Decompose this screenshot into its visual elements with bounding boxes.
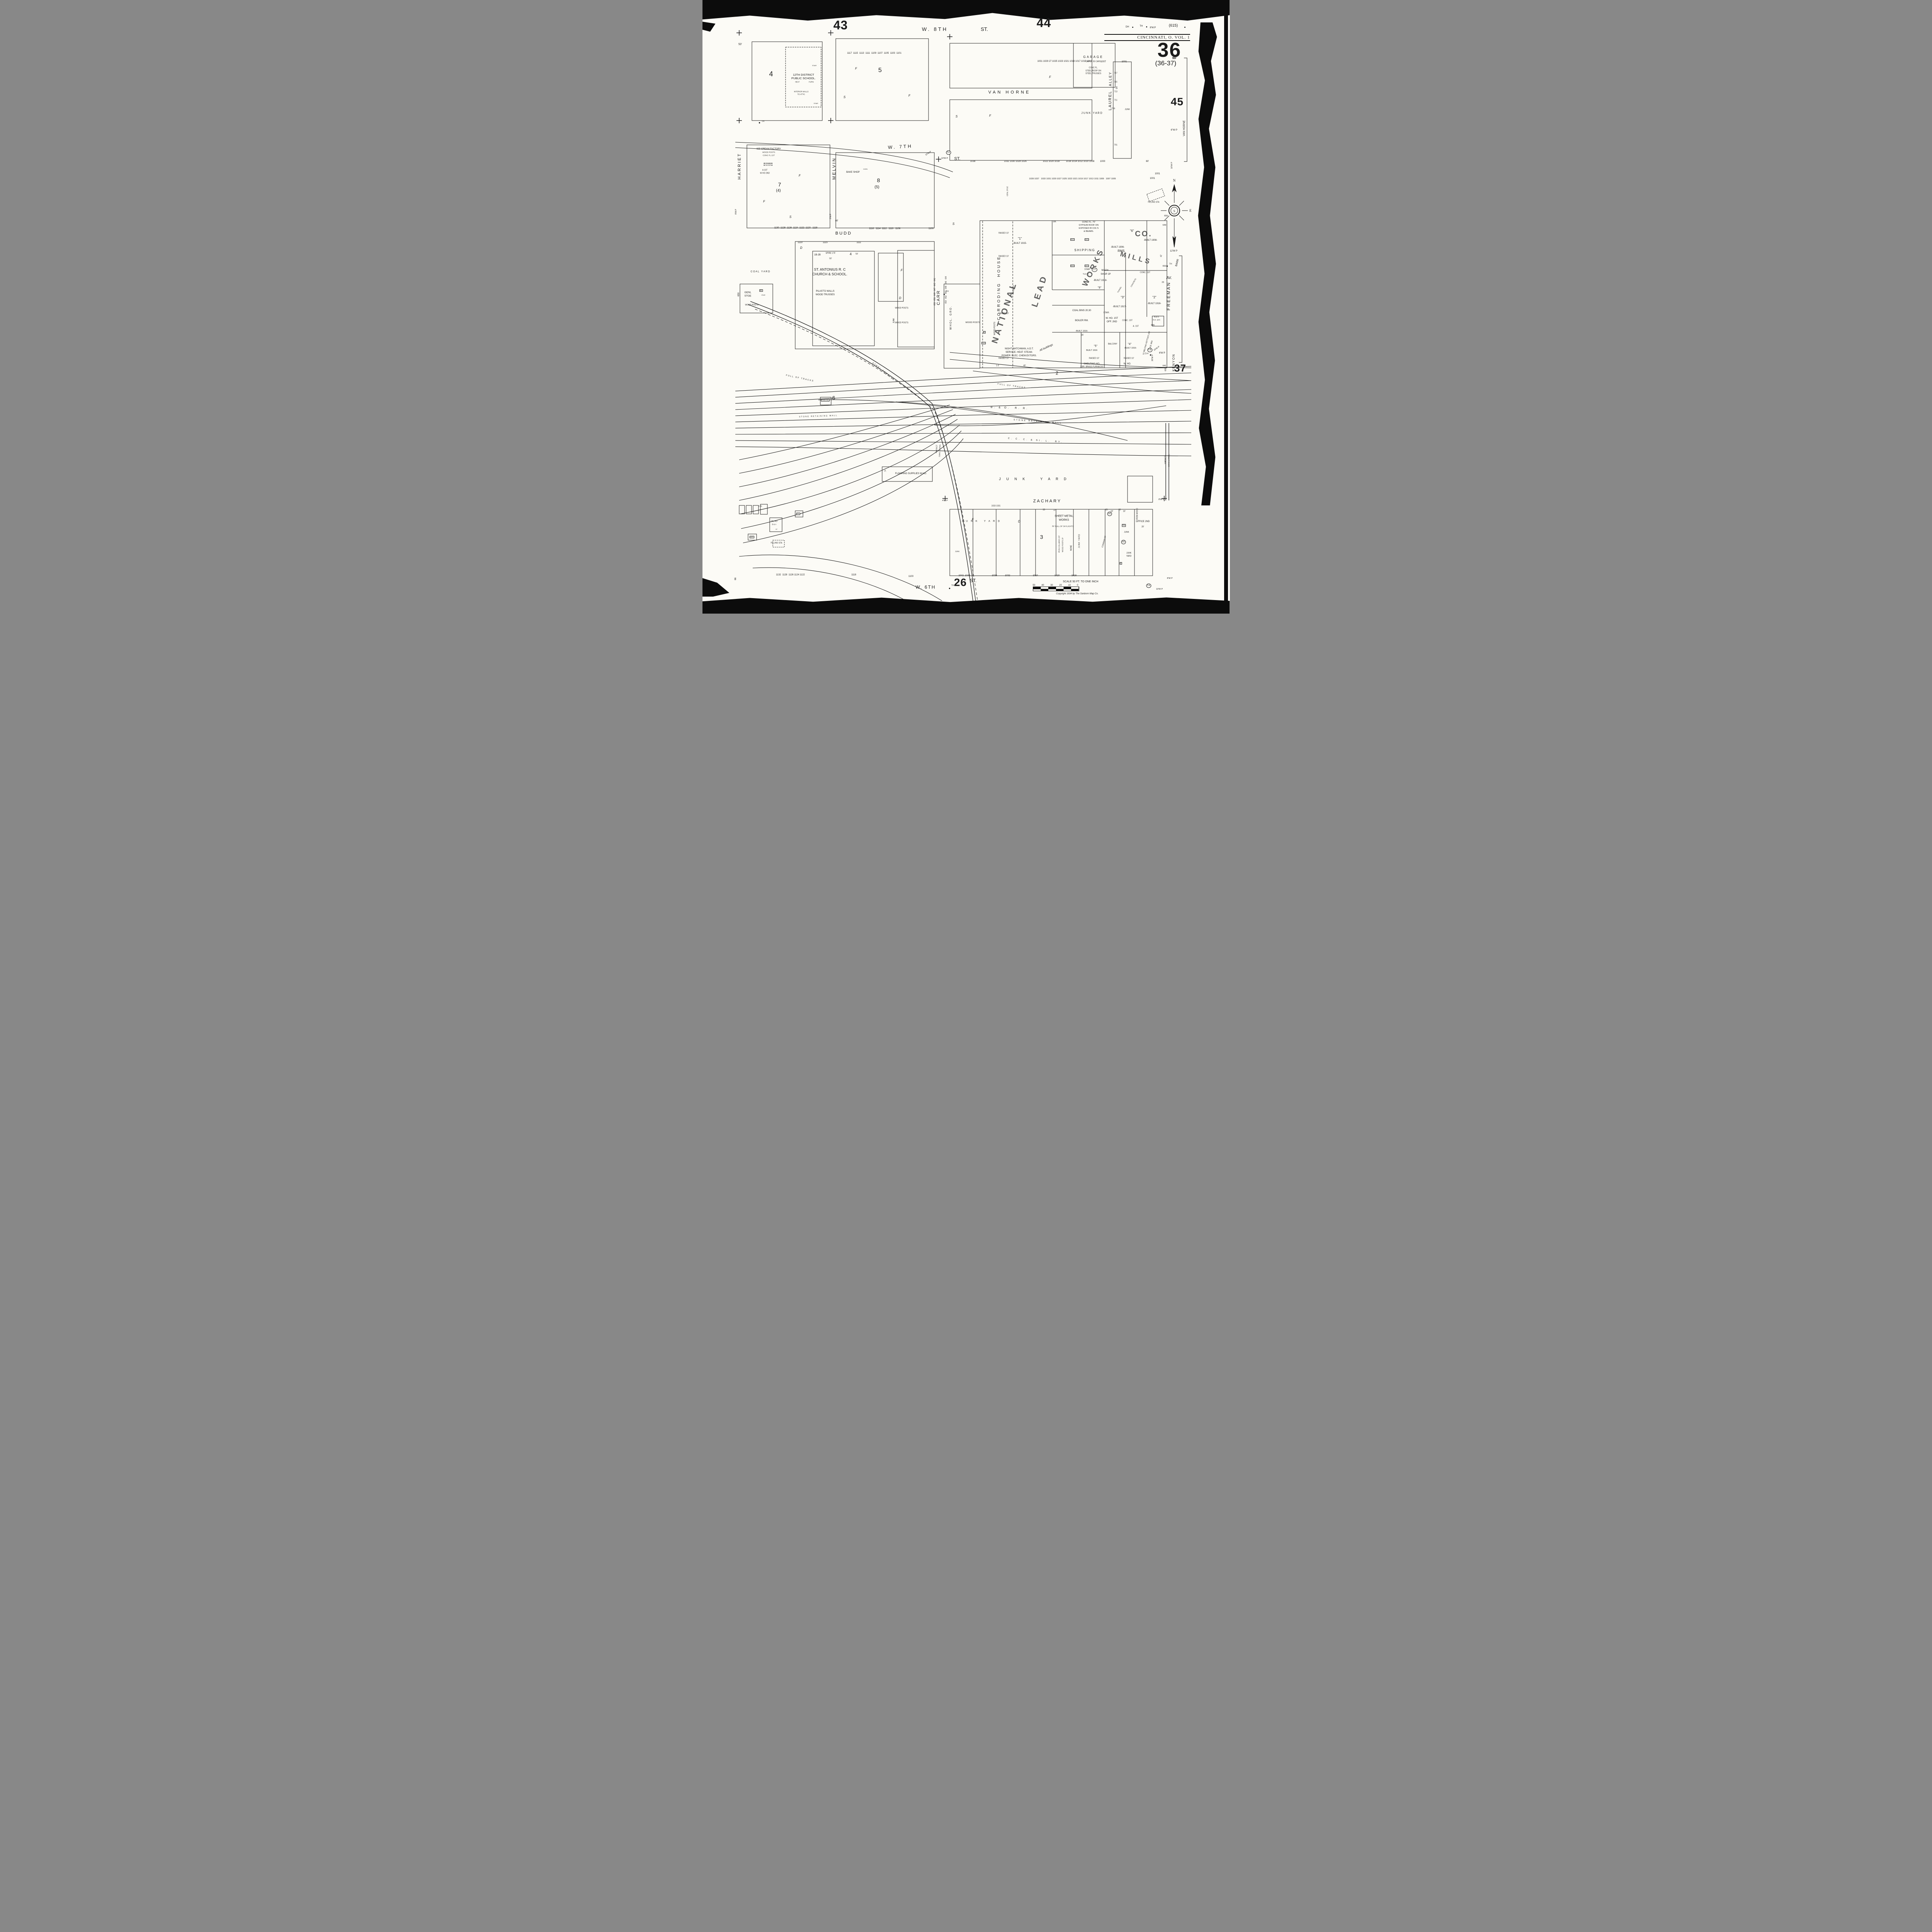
d-2: D (899, 297, 901, 300)
school-walls1: INTERIOR WALLS (794, 91, 809, 93)
nums-vh-3: 1022 1020 1018 (1043, 160, 1060, 163)
border-right-line (1224, 0, 1228, 614)
f-2: F (908, 94, 910, 97)
raised10-4: RAISED 10' (998, 357, 1009, 359)
icecream-5: W HO 2ND (760, 172, 770, 174)
nums-w8th-e: 1031 1029 27 1025 1023 1021 1019 1017 10… (1037, 60, 1092, 63)
built1916-a: -BUILT 1916- (1075, 330, 1088, 333)
compass-rose: N E S (1161, 179, 1192, 247)
street-budd: BUDD (835, 231, 852, 236)
conc1st-2: CONC. 1ST (1122, 320, 1133, 321)
church-sch-4: 4 (850, 252, 852, 256)
woodposts-3: WOOD POSTS (895, 307, 908, 309)
f-3: F (799, 174, 801, 177)
d50-tl: 50' (738, 43, 742, 46)
wp20-kenyon: 20'W P (1152, 354, 1154, 361)
d-3: D (1018, 520, 1020, 523)
oil-2: OIL (796, 513, 800, 515)
boiler-rm: BOILER RM. (1075, 320, 1088, 322)
bldg3: "3" (1121, 296, 1124, 299)
coal-bins: COAL BINS 20.30 (1072, 310, 1091, 312)
genl-3: WOOD POSTS (745, 304, 758, 306)
ref-615: (615) (1169, 24, 1178, 28)
n655: 655 (1151, 325, 1155, 327)
mill-1b: 1B. (1053, 221, 1056, 223)
d12: 12' (776, 529, 777, 530)
nums-1000: 1000 (1100, 160, 1105, 163)
f-7: F (763, 200, 765, 203)
school-walls2: TO ATTIC (798, 94, 805, 96)
raised10-3: RAISED 10' (998, 313, 1009, 315)
wp6-kenyon: 6'W P (1159, 352, 1165, 354)
ce-1: C.E. (1092, 268, 1097, 272)
num-1100b: 1100 (908, 575, 913, 578)
cb-1: (C.B) (759, 505, 762, 507)
copyright-line: Copyright 1934 by The Sanborn Map Co. (1033, 593, 1099, 595)
smelting-2: 2-BR. BRASS FURNACES (1080, 366, 1103, 368)
sheet-26: 26 (954, 577, 967, 588)
balcony: BALCONY (1108, 343, 1117, 345)
block-8: 8 (877, 178, 880, 184)
street-w7th-st: ST. (954, 157, 961, 162)
wp12-freeman: 12'W P (1170, 250, 1177, 252)
dot-dh: ● (1132, 26, 1133, 29)
block-5: 5 (878, 68, 882, 74)
num-715: 715 (1114, 81, 1117, 83)
mill-co: CO. (1135, 230, 1152, 238)
genl-be: BE (759, 289, 763, 292)
num-701: 701 (1114, 144, 1117, 146)
block-7b: (4) (776, 189, 781, 193)
nums-budd-w: 1130 1128 1126 1124 1122 1120 1119 (774, 227, 818, 229)
block-outlines (739, 39, 1167, 576)
bldg2: "2" (1152, 296, 1156, 299)
office-2nd: OFFICE 2ND (1136, 520, 1150, 523)
icecream-closed: CLOSED (764, 163, 772, 166)
church-sch-54: 54' (855, 253, 858, 255)
num-1024: 1024 (1033, 575, 1038, 577)
bldg5: "5" (1094, 345, 1097, 347)
nums-7th-1001: 1001 (1150, 177, 1155, 180)
icecream-2: WOOD POSTS (762, 151, 775, 153)
sheet-45: 45 (1171, 96, 1184, 107)
svg-text:S: S (1173, 209, 1175, 213)
sheetmetal-1: SHEET METAL (1055, 515, 1073, 517)
num-1111: 1111 (856, 241, 861, 244)
th-school: TH (762, 121, 764, 122)
built1916-b: -BUILT 1916- (1148, 303, 1161, 305)
th-w6: TH (951, 585, 954, 587)
s-4: S (789, 216, 791, 219)
sheet-26-st: ST. (970, 578, 976, 583)
scale-bar-2 (1033, 589, 1079, 591)
nums-budd-e: 1116 1114 1112 1110 1108 (869, 228, 900, 230)
nums-carr-e: 654 652 650 648 646 644 (945, 276, 947, 304)
oil-ho: OIL HO (771, 520, 777, 522)
dot-th: ● (1146, 26, 1147, 28)
s-2: S (956, 115, 957, 118)
nightwatch-3: POWER: ELEC. CHEM.EXTGRS. (1002, 355, 1037, 357)
sheet-44: 44 (1037, 17, 1051, 30)
d40-melvin: 40' (835, 220, 838, 222)
filling-sta-1: FILLING STA (771, 542, 782, 544)
concfl-3: EXPOSED IR COL'S (1079, 228, 1099, 230)
wp8-zachary: 8'W P (1158, 499, 1164, 501)
nums-1007: 1007 (1101, 61, 1106, 63)
church-2: CHURCH & SCHOOL. (812, 272, 847, 276)
garage-3: CONC FL. (1089, 67, 1098, 69)
wp8-w6: 8'W P (1167, 578, 1173, 580)
junk-yard-3b: YARD (1126, 555, 1132, 557)
shipping: SHIPPING (1074, 249, 1095, 252)
who-1: W. HO. 1ST (1105, 317, 1118, 320)
iron-col: IRON COLUMNS 1ST (1058, 536, 1060, 553)
nightwatch-1: NIGHT WATCHMAN, A.D.T. (1005, 348, 1033, 350)
garage-4: STEEL ROOF ON (1085, 70, 1101, 72)
nums-w6-e1: 1042 1040 (958, 575, 970, 577)
built1906: -BUILT 1906- (1111, 246, 1124, 248)
block-3z: 3 (1040, 534, 1043, 540)
f-6: F (989, 114, 991, 117)
church-spire: SPIRE 175' (826, 252, 836, 254)
tile-rf: TILE RF (1083, 274, 1089, 276)
f-4: F (901, 269, 903, 272)
n1001-freeman: 1001 (1155, 173, 1160, 175)
sheet-range: (36-37) (1155, 60, 1177, 67)
bldg1: "1" (1018, 237, 1022, 240)
s-3: S (1116, 87, 1117, 90)
who-2: OFF. 2ND (1107, 321, 1117, 323)
b-and-a: B & A (772, 524, 776, 526)
as-2: AS (1121, 540, 1126, 544)
smelting-1: SMELTING HO. (1083, 363, 1100, 365)
concfl-4: & BEAMS. (1084, 231, 1094, 233)
school-stair1: STAIR (812, 65, 816, 66)
track-6: 6 (832, 395, 835, 401)
n653-f: 653 (1163, 265, 1166, 268)
dot-freeman: ● (1166, 265, 1168, 268)
none-v: NONE (1070, 545, 1072, 551)
num-1118: 1118 (851, 574, 856, 576)
n23: 23 (1162, 282, 1164, 284)
d-1: D (800, 247, 803, 250)
num-709: 709 (1112, 108, 1115, 110)
built1918: -BUILT 1918- (1094, 279, 1107, 282)
filling-sta-2: FILLING STA (1148, 201, 1160, 203)
n659: 659 (1164, 215, 1168, 218)
raised10-6: RAISED 10' (1124, 357, 1134, 359)
wood-posts-2p: WOOD POSTS 2P (1062, 537, 1064, 552)
track-2: 2 (1056, 371, 1058, 376)
genl-stge-7th: GENL STGE (1007, 186, 1009, 196)
wg-5: W.G (981, 342, 986, 344)
icecream-3: CONC FL 1ST (763, 155, 775, 156)
school-stair2: STAIR (814, 103, 818, 104)
wp8-left: 8'W.P (735, 209, 738, 214)
garage-5: STEEL TRUSSES (1085, 73, 1101, 75)
oven: OVEN (863, 168, 867, 170)
num-1038b: 1038 (992, 575, 997, 577)
wp6-margin: 6"W P (1171, 129, 1177, 131)
wp10-7th: 10'W P (941, 158, 948, 160)
raised10-2: RAISED 10' (998, 255, 1009, 257)
street-melvin: MELVIN (832, 157, 837, 180)
junk-yard-3a: JUNK (1126, 552, 1131, 554)
block-7: 7 (778, 182, 781, 188)
num-1032b: 1032 (1005, 575, 1010, 577)
n1b-1: 1B (1043, 509, 1045, 511)
vanhorne-margin: VAN HORNE (1183, 120, 1185, 136)
built1916-d: -BUILT 1916- (1124, 347, 1137, 350)
nums-vh-4: 1016 1014 1012 1010 1008 (1066, 160, 1094, 163)
garage-1: GARAGE (1083, 56, 1103, 59)
num-711: 711 (1114, 99, 1117, 101)
f-1: F (855, 67, 857, 70)
church-50: 50' (829, 258, 832, 260)
num-717: 717 (1114, 72, 1117, 74)
stair-mill2: STAIR. (1104, 312, 1110, 314)
junk-laurel: JUNK (1125, 109, 1130, 111)
n649: 649 (1163, 224, 1166, 227)
junkyard-w6: J U N K Y A R D (962, 520, 1001, 523)
school-2: PUBLIC SCHOOL. (791, 77, 816, 80)
nums-7throw: 1039 1037 1033 1031 1029 1027 1025 1023 … (1029, 178, 1116, 180)
icecream-1: ICE CREAM FACTORY (757, 148, 781, 150)
bldg6: "6" (1130, 230, 1134, 233)
wp10-7the: 10'W P (1171, 162, 1173, 169)
sheet-43: 43 (833, 19, 848, 32)
d60-7th: 60' (1146, 160, 1149, 163)
dh-top: DH (1126, 26, 1129, 28)
viaduct-2b: CONC & STEEL (1168, 454, 1170, 467)
viaduct-1a: VIADUCT (935, 445, 938, 453)
church-4: WOOD TRUSSES (816, 294, 835, 296)
woodposts-4: WOOD POSTS (895, 322, 908, 324)
raised10-5: RAISED 10' (1089, 357, 1099, 359)
concfl-1: CONC FL. 70' (1082, 221, 1095, 224)
wp4-zachary: 4'W P (942, 500, 948, 502)
dist-60: 60' (1173, 56, 1177, 60)
bake-shop: BAKE SHOP (846, 171, 860, 173)
nums-vh-1: 1038 (970, 160, 975, 163)
bldg9: "9" (1098, 286, 1101, 289)
scale-tick: 40 (1041, 584, 1044, 587)
built1915: -BUILT 1915- (1013, 242, 1027, 245)
junkyard-v: JUNK YARD (1078, 534, 1080, 548)
block-4: 4 (769, 71, 773, 78)
built1916-c: BUILT 1916 (1086, 350, 1097, 352)
wg-1: W.G (1070, 238, 1075, 241)
num-1115: 1115 (823, 241, 827, 244)
conc1st-1: CONC. 1ST (1140, 272, 1150, 274)
viaduct-2a: VIADUCT (1165, 456, 1167, 464)
ebox-1: E (983, 331, 986, 333)
scale-tick: 0 (1077, 584, 1078, 587)
street-alley: ALLEY (1109, 71, 1112, 86)
scale-tick: 10 (1068, 584, 1071, 587)
concfl-2: GYPSUM ROOF ON (1079, 224, 1099, 227)
wp2-left: 2'W.P (830, 214, 832, 219)
iron-wood: IRON WOOD (1136, 508, 1138, 520)
scale-text: SCALE 50 FT. TO ONE INCH (1033, 580, 1099, 583)
street-harriet: HARRIET (738, 153, 742, 179)
wg-3: W.G (1070, 265, 1075, 267)
th-freeman: TH (1169, 263, 1172, 265)
nums-w8th-w: 1117 1115 1113 1111 1109 1107 1105 1103 … (847, 52, 901, 54)
block-8b: (5) (874, 185, 879, 190)
wp10-w6: 10'W P (1156, 588, 1163, 591)
n1b-3: 1B (1118, 509, 1121, 511)
street-kenyon: KENYON (1172, 354, 1175, 371)
nightwatch-2: SERVICE. HEAT: STEAM. (1005, 351, 1032, 354)
mach-1: MACH (1102, 269, 1109, 272)
street-freeman: FREEMAN (1167, 282, 1172, 311)
survey-ticks (736, 30, 1167, 501)
f-8: F (972, 518, 974, 521)
sheetmetal-3: RF FULL OF SKYLIGHTS (1052, 526, 1074, 527)
dot-615: ● (1184, 26, 1185, 29)
svg-text:N: N (1173, 179, 1175, 182)
mach-2: SHOP 2P (1101, 273, 1111, 276)
d42: 42' (1160, 255, 1162, 257)
ns-1: NS (1122, 524, 1126, 527)
num-1119: 1119 (798, 241, 802, 244)
raised10-1: RAISED 10' (998, 232, 1009, 234)
street-carr: CARR (937, 290, 941, 305)
sheet-37: 37 (1174, 363, 1186, 373)
left-66: 66 (734, 578, 736, 580)
school-furn: FURN (809, 82, 814, 83)
f-5: F (1049, 76, 1051, 79)
woodposts-1: WOOD POSTS (966, 322, 980, 324)
coal-yard: C O A L Y A R D (750, 271, 770, 274)
n1b-2: 1B (1105, 509, 1107, 511)
dh-kenyon: D.H (1145, 353, 1148, 355)
street-zachary: ZACHARY (1033, 499, 1061, 504)
w8th-st: ST. (981, 27, 988, 32)
wholgro: WHOL. GRO. (949, 306, 952, 330)
sanborn-map-sheet: N E S CINCINNATI, O. VOL. 1 36 60' (36-3… (702, 0, 1230, 614)
scale-tick: 50 (1033, 584, 1036, 587)
scale-assembly: SCALE 50 FT. TO ONE INCH 50403020100 Cop… (1033, 580, 1099, 595)
wg-4: W.G (1085, 265, 1089, 267)
nz-zachary: 1033 1031 (992, 505, 1001, 507)
th-top: TH (1140, 25, 1143, 27)
stair-mill1: STAIR (1084, 269, 1090, 270)
mill-corroding: CORRODING HOUSE (997, 255, 1001, 320)
w8th: W. 8TH (922, 27, 948, 32)
nums-carr-w: 653 651 649 647 643 641 (934, 278, 936, 306)
street-freeman-av: AV. (1166, 276, 1172, 281)
d18-1: 18' (1111, 510, 1113, 512)
icecream-4: A 1ST (762, 169, 768, 171)
viaduct-1b: CONC & STEEL (939, 444, 941, 457)
tool-hs: TOOL HS. (821, 399, 829, 401)
a1st: A. 1ST (1133, 325, 1139, 327)
flooring-2: FLOORING SUPPLIES W.HO. (895, 473, 927, 475)
scale-tick: 20 (1059, 584, 1062, 587)
num-1016: 1016 (1071, 575, 1077, 577)
wp8-top: 8'W.P (1150, 27, 1156, 29)
church-1: ST. ANTONIUS R. C (814, 268, 846, 271)
scale-bar (1033, 587, 1079, 589)
built1908: -BUILT 1908- (1144, 239, 1157, 241)
d18-2: 18' (1123, 510, 1126, 512)
nums-1001: 1001 (1122, 61, 1127, 63)
d22: 22' (1053, 509, 1056, 511)
genl-stair: STAIR (761, 295, 765, 296)
nums-vh-2: 1032 1030 1028 1026 (1004, 160, 1026, 163)
junkyard-laurel: J U N K Y A R D (1081, 112, 1102, 114)
junkyard-big: J U N K Y A R D (999, 477, 1068, 481)
school-heat: HEAT (795, 82, 800, 83)
who-b: W. HO. (1124, 363, 1131, 365)
genl-2: STGE (745, 295, 752, 298)
nums-w6-w: 1132 1128 1126 1124 1122 (776, 574, 805, 576)
d35: 35' (1081, 334, 1084, 336)
d28: 28' (1141, 526, 1144, 528)
num-1020: 1020 (1054, 575, 1060, 577)
nums-1100: 1100 (929, 228, 934, 230)
n1-3: 1-3 (996, 365, 999, 367)
junk-3: JUNK (955, 551, 960, 553)
dot-kenyon: ● (1150, 354, 1151, 357)
church-1b2b: 1B-2B (814, 254, 821, 256)
num-713: 713 (1114, 91, 1117, 93)
dot-school: ● (759, 121, 760, 124)
wg-2: W.G (1085, 238, 1089, 241)
s-5: S (952, 223, 954, 226)
street-w6th: W. 6TH (915, 585, 935, 590)
street-vanhorne: VAN HORNE (988, 90, 1031, 95)
scale-tick: 30 (1050, 584, 1053, 587)
railroad-tracks (735, 352, 1191, 609)
church-3: PILAST'D WALLS (816, 290, 835, 293)
n635: 635 (1165, 367, 1167, 371)
svg-text:E: E (1189, 209, 1192, 213)
genl-1: GENL (745, 292, 752, 294)
built1917: -BUILT 1917- (1113, 306, 1126, 308)
bo-off-2: R.R. OFF. (1153, 320, 1161, 321)
n641: 641 (1163, 365, 1166, 367)
flooring-1: F. (884, 470, 886, 473)
ebox-2: E (1119, 562, 1122, 565)
junk-2: JUNK (1124, 531, 1129, 533)
dot-w6: ● (949, 587, 951, 590)
genl-650: 650 (737, 293, 740, 296)
sheet-number: 36 (1158, 39, 1182, 62)
bo-off-1: B.& O. (1154, 316, 1159, 318)
school-1: 12TH DISTRICT (793, 73, 814, 77)
d40-mill: 40' (1023, 365, 1026, 367)
rms: RMS. (1118, 250, 1126, 253)
bldg4b: "4" (1128, 343, 1131, 345)
sheetmetal-2: WORKS (1059, 519, 1069, 521)
s-1: S (844, 96, 845, 99)
off-box: OFF (750, 536, 754, 538)
